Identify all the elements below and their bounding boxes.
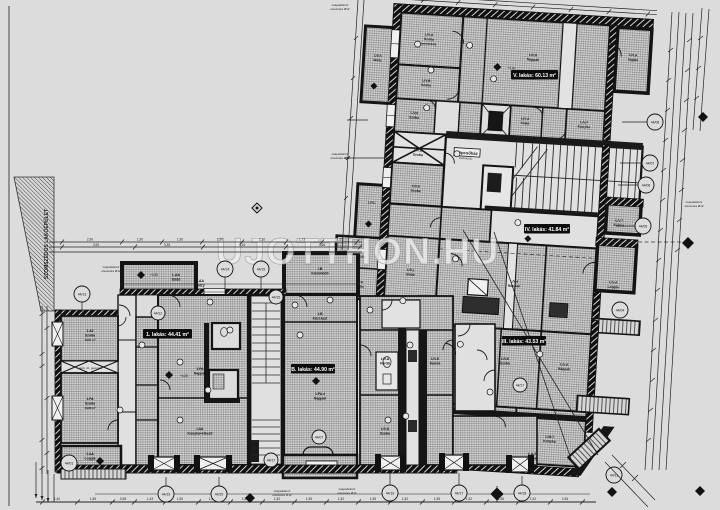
- svg-text:2,45: 2,45: [562, 497, 568, 501]
- svg-text:1,55: 1,55: [434, 497, 440, 501]
- svg-text:L.AA: L.AA: [196, 279, 204, 283]
- svg-text:1.AA: 1.AA: [86, 452, 94, 456]
- svg-text:Szoba: Szoba: [500, 362, 510, 366]
- svg-text:elvezetés Ø12: elvezetés Ø12: [330, 156, 350, 160]
- svg-text:+4,30: +4,30: [150, 273, 158, 277]
- svg-text:44/16: 44/16: [386, 491, 395, 495]
- svg-text:44/04: 44/04: [616, 308, 625, 312]
- svg-text:L/V.6: L/V.6: [501, 357, 509, 361]
- svg-text:Konyha: Konyha: [543, 439, 556, 444]
- svg-text:Szoba: Szoba: [413, 153, 423, 158]
- svg-text:1.PA: 1.PA: [86, 397, 94, 401]
- svg-text:Wells: Wells: [373, 58, 382, 63]
- svg-text:2,10: 2,10: [259, 238, 265, 242]
- svg-text:B. lakás: 44.90 m²: B. lakás: 44.90 m²: [291, 367, 335, 373]
- svg-text:loggia: loggia: [628, 57, 638, 62]
- svg-text:Közl.kszt: Közl.kszt: [313, 317, 329, 321]
- svg-text:Bébé: Bébé: [406, 272, 415, 277]
- svg-text:44/17: 44/17: [267, 458, 276, 462]
- svg-text:1,73: 1,73: [299, 238, 305, 242]
- svg-text:44/18: 44/18: [518, 491, 527, 495]
- svg-text:vasb. vb. gerenda: vasb. vb. gerenda: [78, 366, 102, 370]
- svg-text:fürdő: fürdő: [172, 278, 181, 282]
- svg-text:1. lakás: 44.41 m²: 1. lakás: 44.41 m²: [146, 332, 189, 338]
- svg-text:3,35: 3,35: [164, 243, 170, 247]
- svg-text:közlekedő: közlekedő: [459, 156, 473, 161]
- svg-text:Nappali: Nappali: [527, 57, 540, 62]
- svg-text:44/11: 44/11: [610, 473, 618, 477]
- svg-text:44/07: 44/07: [315, 435, 324, 439]
- svg-text:L.A.2: L.A.2: [528, 452, 536, 456]
- svg-text:1,52: 1,52: [338, 497, 344, 501]
- svg-text:V. lakás: 60.13 m²: V. lakás: 60.13 m²: [513, 73, 556, 79]
- svg-text:1.PA: 1.PA: [196, 367, 204, 371]
- svg-text:1,90: 1,90: [177, 238, 183, 242]
- svg-text:SZOMSZÉDOS LAKÓÉPÜLET: SZOMSZÉDOS LAKÓÉPÜLET: [42, 209, 50, 279]
- svg-text:+4,30: +4,30: [507, 66, 516, 70]
- svg-text:Szoba: Szoba: [421, 83, 431, 88]
- svg-text:elvezetés Ø12: elvezetés Ø12: [330, 7, 350, 11]
- svg-text:44/14: 44/14: [221, 267, 230, 271]
- svg-text:1.A2: 1.A2: [86, 329, 93, 333]
- svg-text:1,52: 1,52: [530, 497, 536, 501]
- svg-text:Loggia: Loggia: [526, 457, 537, 461]
- svg-text:IV. lakás: 41.84 m²: IV. lakás: 41.84 m²: [525, 227, 569, 233]
- svg-text:16,81 m²: 16,81 m²: [84, 338, 95, 342]
- svg-text:+4,30: +4,30: [180, 374, 188, 378]
- svg-text:3,68: 3,68: [319, 243, 325, 247]
- svg-text:elvezetés Ø12: elvezetés Ø12: [337, 491, 357, 495]
- svg-text:1,40: 1,40: [54, 497, 60, 501]
- svg-text:L/V.L: L/V.L: [368, 200, 376, 204]
- svg-text:1,50: 1,50: [177, 497, 183, 501]
- svg-text:I.AA: I.AA: [197, 427, 204, 431]
- svg-text:1,90: 1,90: [217, 238, 223, 242]
- svg-text:elvezetés Ø12: elvezetés Ø12: [684, 204, 704, 208]
- svg-text:44/06: 44/06: [642, 183, 651, 187]
- svg-text:Nappali: Nappali: [508, 284, 521, 289]
- svg-text:1,52: 1,52: [466, 497, 472, 501]
- svg-text:1,43: 1,43: [147, 497, 153, 501]
- svg-text:Nappali: Nappali: [194, 372, 206, 376]
- svg-text:1,85: 1,85: [90, 497, 96, 501]
- svg-text:16,88 m²: 16,88 m²: [84, 406, 95, 410]
- svg-text:44/05: 44/05: [639, 224, 648, 228]
- svg-text:Szoba: Szoba: [410, 188, 420, 193]
- svg-text:1,55: 1,55: [306, 497, 312, 501]
- svg-text:44/19: 44/19: [162, 492, 171, 496]
- svg-text:L/V.A: L/V.A: [381, 357, 390, 361]
- svg-text:Loggia: Loggia: [84, 457, 95, 461]
- svg-text:1.B: 1.B: [317, 312, 323, 316]
- svg-text:44/15: 44/15: [257, 267, 266, 271]
- svg-text:44/07: 44/07: [646, 161, 655, 165]
- svg-text:44/01: 44/01: [65, 461, 74, 465]
- svg-text:elvezetés Ø12: elvezetés Ø12: [101, 269, 121, 273]
- svg-text:Loggia: Loggia: [607, 285, 618, 290]
- svg-text:Szoba: Szoba: [85, 402, 95, 406]
- svg-text:1.PA.4: 1.PA.4: [315, 392, 325, 396]
- svg-text:Konyha+étkező: Konyha+étkező: [188, 432, 213, 436]
- svg-text:44/08: 44/08: [651, 120, 660, 124]
- svg-text:44/12: 44/12: [154, 311, 163, 315]
- svg-text:44/13: 44/13: [78, 292, 87, 296]
- svg-text:44/15: 44/15: [272, 295, 281, 299]
- svg-text:Kamra: Kamra: [430, 362, 441, 366]
- svg-text:III. lakás: 43.53 m²: III. lakás: 43.53 m²: [502, 339, 546, 345]
- svg-text:L.AA: L.AA: [172, 273, 180, 277]
- svg-text:fürdő: fürdő: [520, 121, 529, 126]
- svg-text:Szoba: Szoba: [380, 432, 390, 436]
- svg-text:elvezetés Ø12: elvezetés Ø12: [272, 493, 292, 497]
- svg-text:1,52: 1,52: [402, 497, 408, 501]
- svg-text:1,52: 1,52: [274, 497, 280, 501]
- svg-text:Kamra: Kamra: [613, 223, 624, 228]
- svg-text:44/20: 44/20: [215, 492, 224, 496]
- svg-text:Szoba: Szoba: [409, 115, 419, 120]
- svg-text:Fürdő: Fürdő: [380, 362, 390, 366]
- svg-text:Konyha: Konyha: [577, 125, 590, 130]
- svg-text:2,90: 2,90: [87, 238, 93, 242]
- svg-text:Nappali: Nappali: [558, 367, 571, 372]
- svg-text:L/V.A: L/V.A: [381, 427, 390, 431]
- svg-text:L/V.6: L/V.6: [431, 357, 439, 361]
- svg-text:3,90: 3,90: [93, 243, 99, 247]
- svg-text:44/17: 44/17: [516, 383, 525, 387]
- svg-text:Szoba: Szoba: [85, 334, 95, 338]
- svg-text:4,10: 4,10: [239, 243, 245, 247]
- svg-text:1,90: 1,90: [137, 238, 143, 242]
- svg-text:Nappali: Nappali: [314, 397, 326, 401]
- svg-text:1,55: 1,55: [370, 497, 376, 501]
- svg-text:0,95: 0,95: [120, 497, 126, 501]
- svg-text:44/17: 44/17: [455, 491, 464, 495]
- svg-text:Közleködő: Közleködő: [311, 272, 328, 276]
